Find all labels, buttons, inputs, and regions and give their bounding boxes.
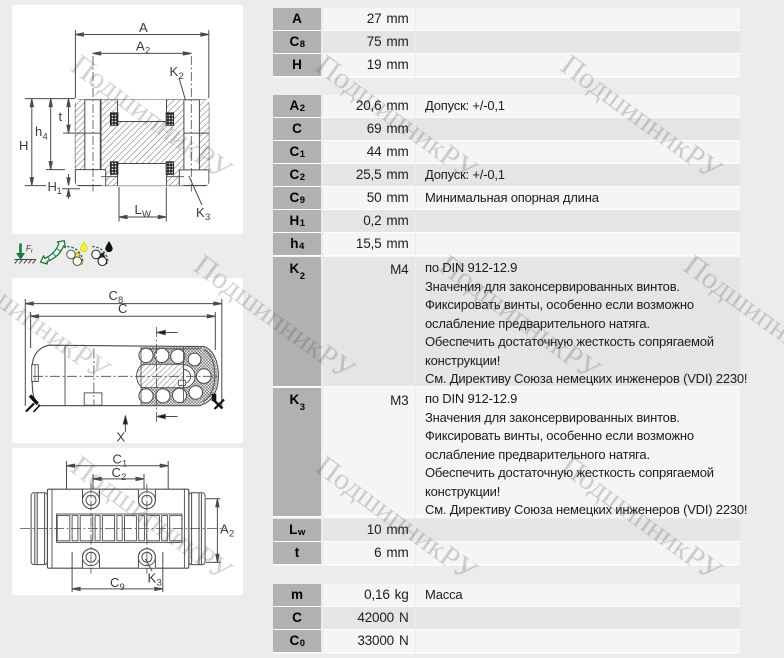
svg-text:K: K [196, 205, 205, 220]
svg-text:H: H [48, 179, 57, 194]
svg-text:2: 2 [121, 472, 126, 483]
svg-text:1: 1 [122, 459, 127, 470]
svg-text:H: H [19, 138, 28, 153]
svg-text:A: A [136, 39, 145, 54]
svg-text:2: 2 [145, 46, 150, 57]
svg-text:h: h [35, 124, 42, 139]
svg-text:C: C [110, 575, 119, 590]
svg-text:A: A [139, 20, 148, 35]
svg-text:1: 1 [57, 186, 62, 197]
svg-text:W: W [142, 209, 151, 220]
svg-text:L: L [135, 202, 142, 217]
svg-text:9: 9 [120, 582, 125, 593]
svg-text:3: 3 [205, 212, 210, 223]
svg-text:2: 2 [179, 71, 184, 82]
svg-text:C: C [109, 288, 118, 303]
svg-text:t: t [59, 109, 63, 124]
svg-text:3: 3 [157, 578, 162, 589]
svg-text:K: K [170, 64, 179, 79]
svg-text:X: X [117, 430, 126, 444]
svg-text:C: C [118, 301, 127, 316]
svg-text:C: C [112, 465, 121, 480]
svg-text:A: A [220, 522, 229, 537]
svg-text:2: 2 [229, 529, 234, 540]
svg-text:K: K [148, 571, 157, 586]
svg-text:4: 4 [43, 132, 48, 143]
svg-text:r: r [31, 249, 33, 255]
